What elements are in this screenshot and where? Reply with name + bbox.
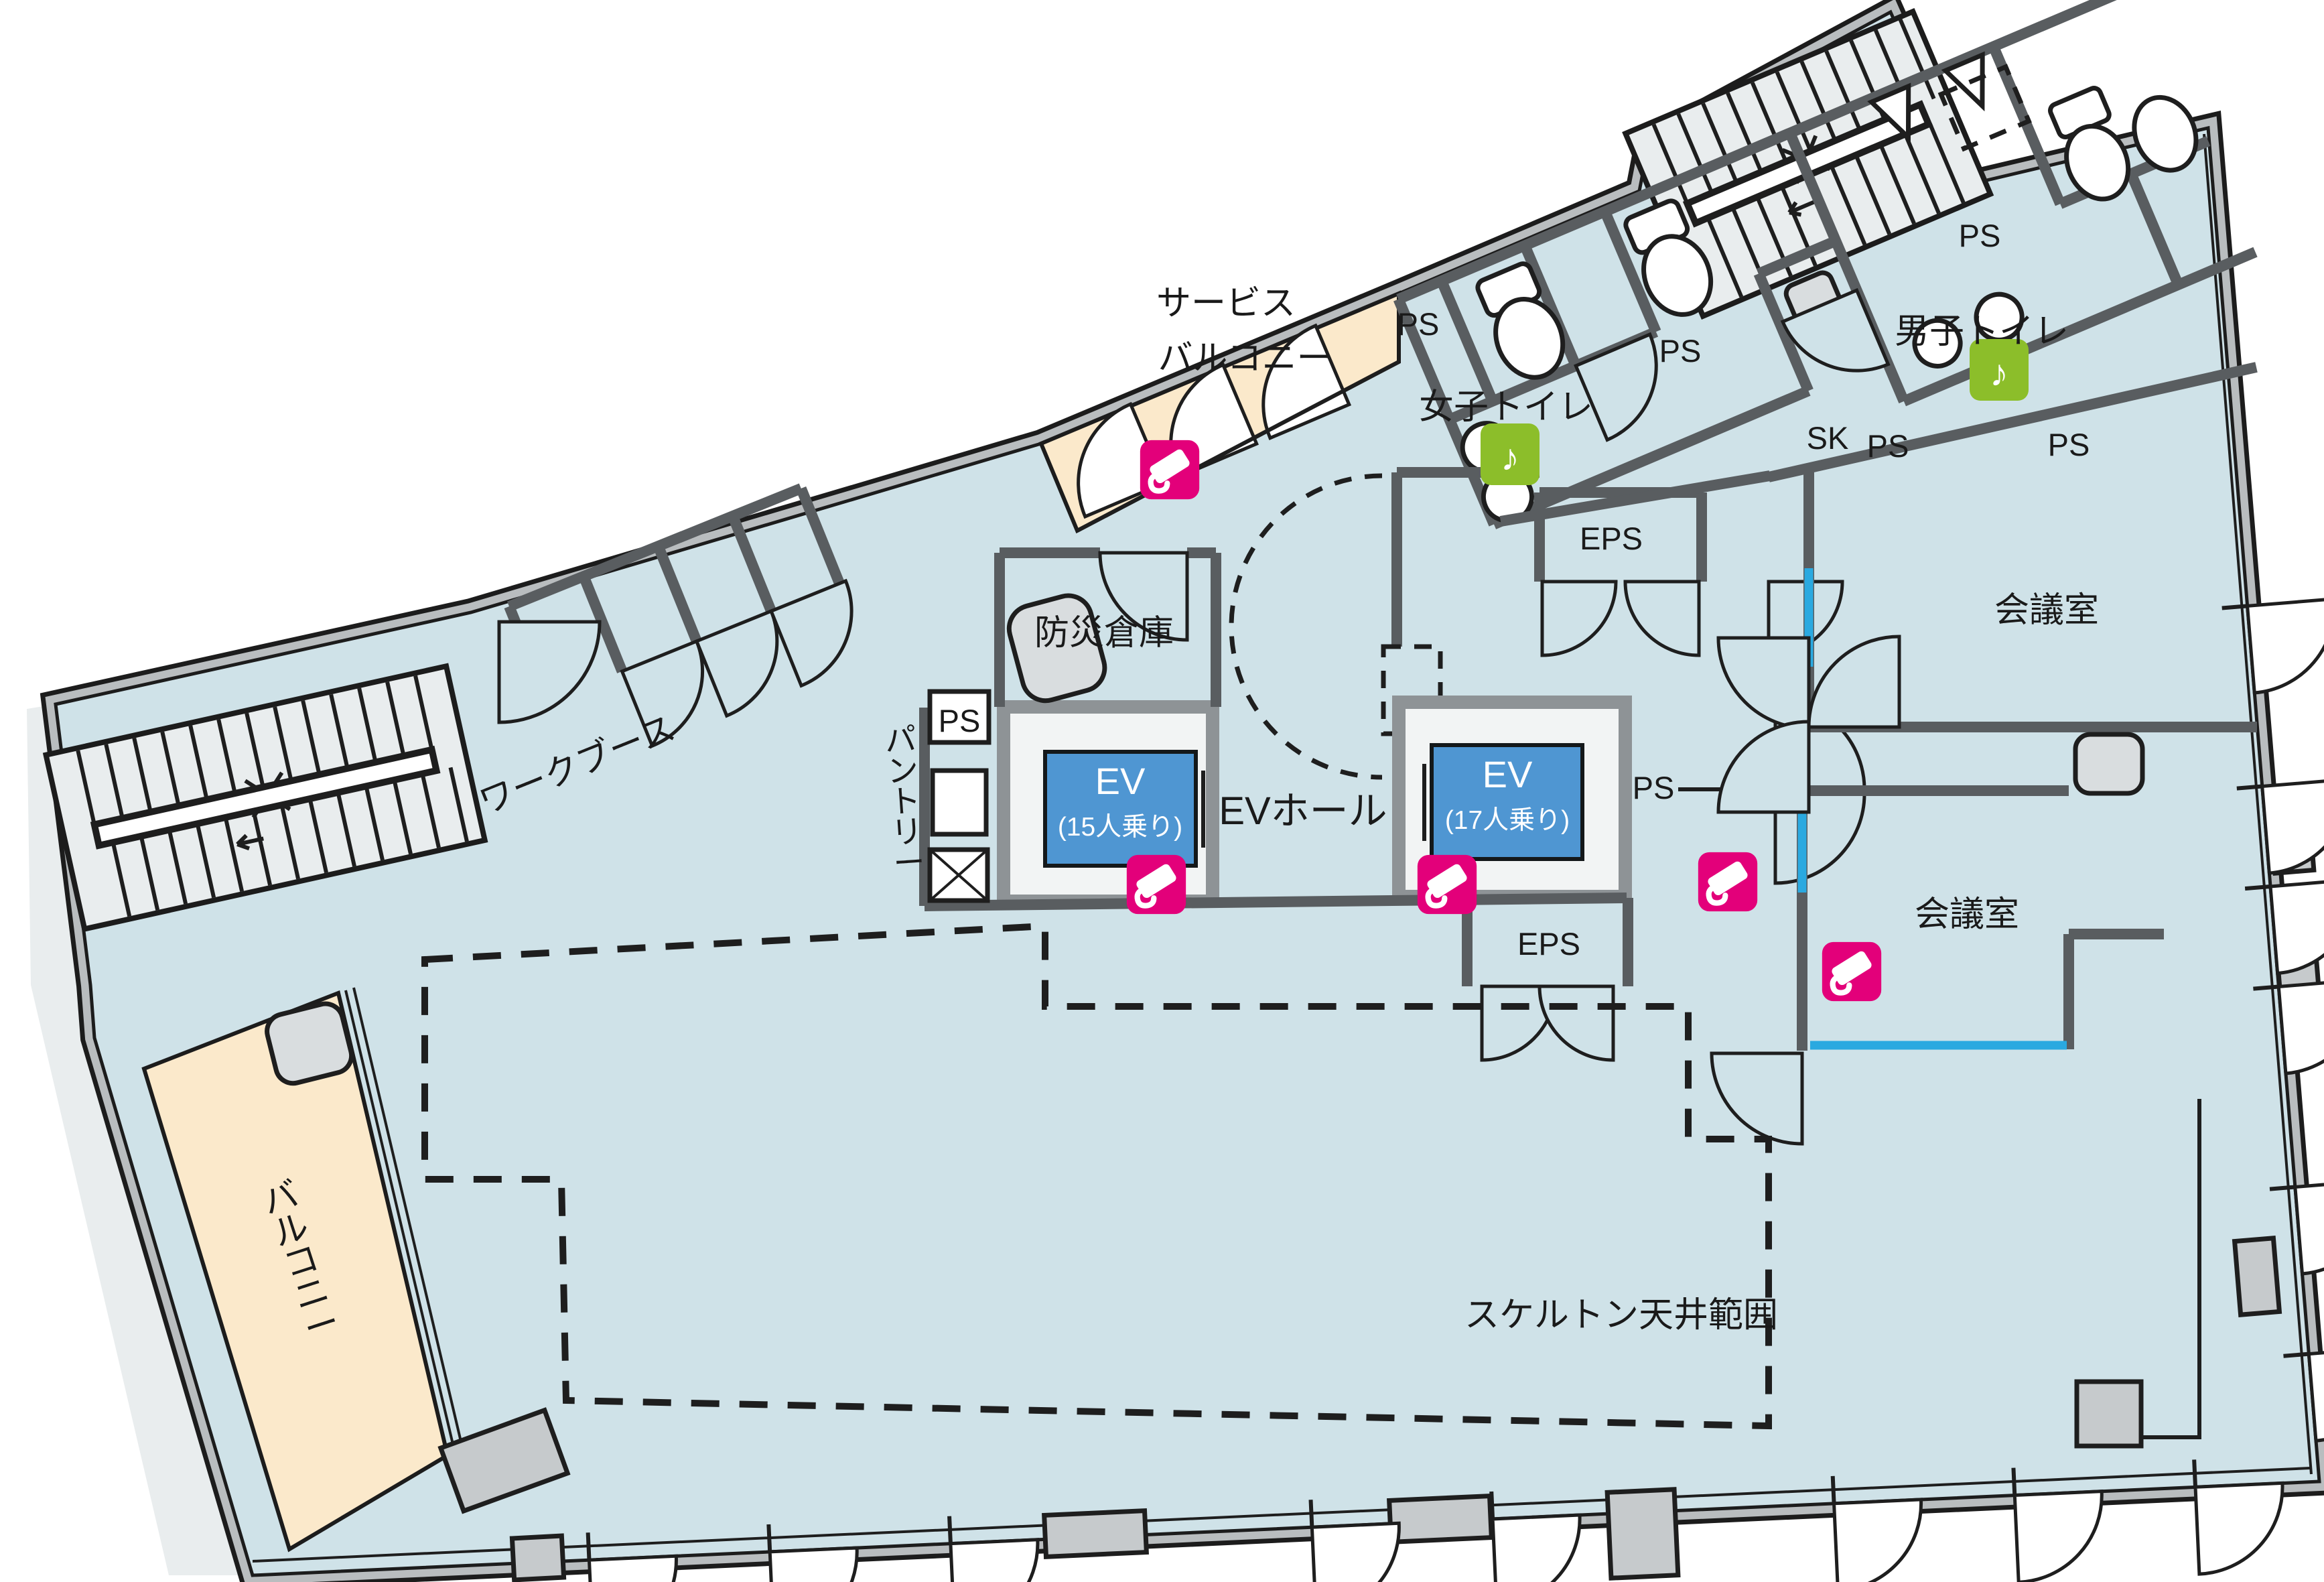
sink-fixture [263,1000,355,1087]
speaker-icon: ♪ [1481,423,1540,485]
label-ev17: EV [1483,753,1533,795]
label-meeting-room-1: 会議室 [1994,591,2099,630]
security-camera-icon [1822,942,1881,1001]
label-ps: PS [1633,770,1675,805]
label-ps: PS [939,703,981,738]
label-womens-toilet: 女子トイレ [1419,388,1593,427]
column [2077,1382,2141,1446]
label-eps: EPS [1580,521,1643,556]
label-disaster-storage: 防災倉庫 [1034,614,1174,653]
floor-plan: ♪ ♪ サービス バルコニー PS 女子トイレ EPS PS 男子トイレ PS … [0,0,2324,1582]
security-camera-icon [1127,855,1186,914]
label-eps: EPS [1517,926,1580,962]
label-service-balcony-2: バルコニー [1158,339,1332,378]
label-ev-hall: EVホール [1219,789,1387,833]
label-meeting-room-2: 会議室 [1915,895,2019,934]
label-ps: PS [1659,333,1702,369]
label-ps: PS [1959,218,2001,253]
label-sk: SK [1807,420,1849,456]
note-glyph: ♪ [1501,436,1519,478]
label-mens-toilet: 男子トイレ [1895,312,2069,351]
label-ps: PS [1397,306,1440,342]
security-camera-icon [1418,855,1477,914]
label-ev17-capacity: (17人乗り) [1445,806,1570,835]
label-ps: PS [2048,427,2090,462]
label-ev15: EV [1095,760,1146,802]
security-camera-icon [1698,852,1757,911]
label-service-balcony-1: サービス [1156,284,1296,323]
label-skeleton-ceiling: スケルトン天井範囲 [1464,1296,1778,1335]
floor-plan-canvas: ♪ ♪ サービス バルコニー PS 女子トイレ EPS PS 男子トイレ PS … [0,0,2324,1582]
label-ps: PS [1867,428,1909,464]
note-glyph: ♪ [1990,352,2008,394]
label-ev15-capacity: (15人乗り) [1058,813,1182,842]
security-camera-icon [1140,440,1199,499]
